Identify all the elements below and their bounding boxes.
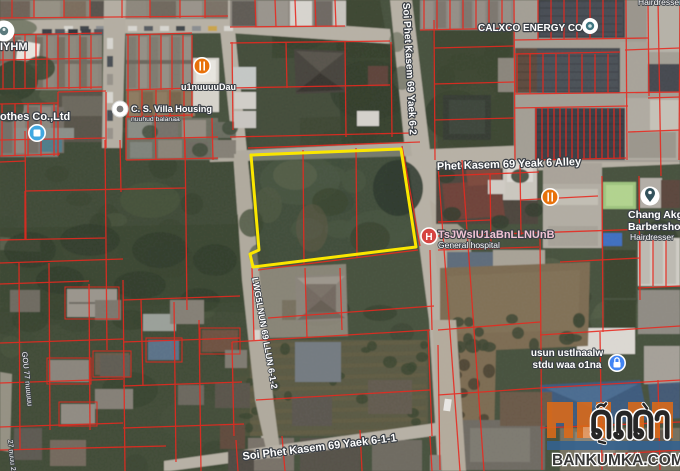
svg-text:u1nuuuuDau: u1nuuuuDau [181,82,236,92]
svg-text:BANKUMKA.COM: BANKUMKA.COM [552,452,680,469]
svg-text:Hairdresser: Hairdresser [638,0,680,7]
svg-text:Hairdresser: Hairdresser [630,232,674,242]
svg-text:IYHM: IYHM [0,41,28,53]
svg-text:C. S. Villa Housing: C. S. Villa Housing [131,104,212,114]
svg-text:nuuhud balanaa: nuuhud balanaa [131,116,180,123]
svg-text:othes Co.,Ltd: othes Co.,Ltd [0,111,70,123]
svg-text:usun ustlnaalw: usun ustlnaalw [531,348,603,359]
svg-text:H: H [425,232,432,243]
svg-text:stdu waa o1na: stdu waa o1na [533,360,602,371]
svg-text:Chang Akg: Chang Akg [628,209,680,221]
svg-text:General hospital: General hospital [438,240,500,250]
svg-text:CALXCO ENERGY CO.: CALXCO ENERGY CO. [478,23,586,34]
